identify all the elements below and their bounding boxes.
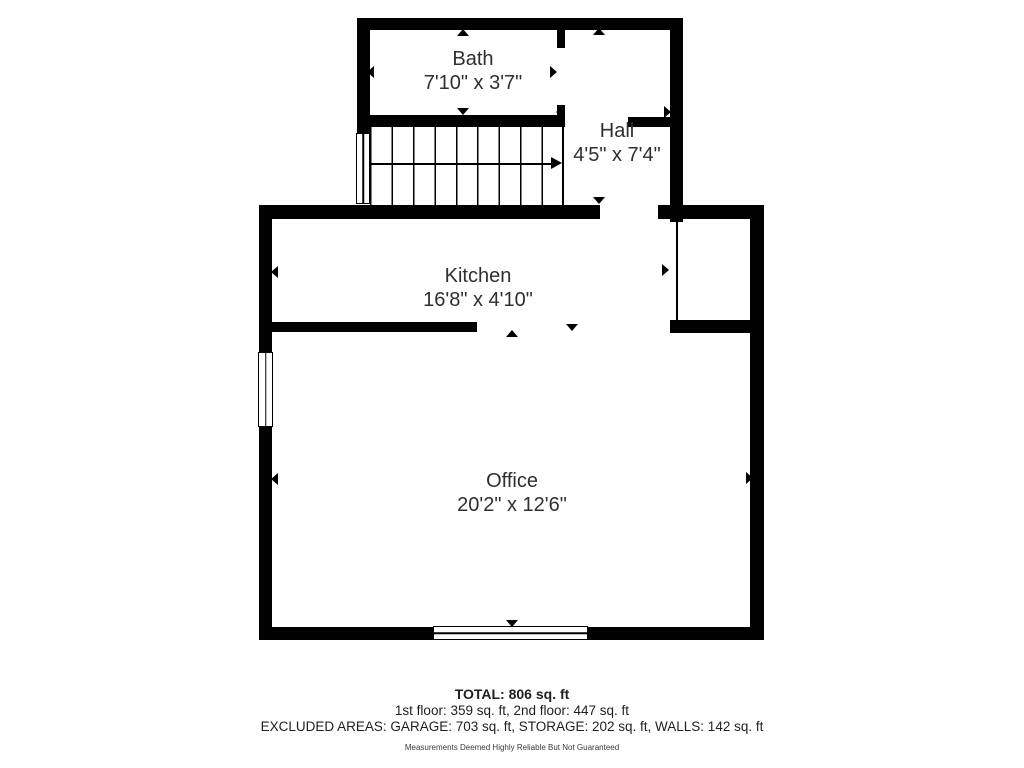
room-name: Bath (424, 48, 523, 72)
room-dimensions: 20'2" x 12'6" (457, 494, 567, 518)
wall-segment (357, 18, 683, 30)
window-icon (433, 626, 588, 640)
stairs-direction-arrow-icon (370, 163, 552, 165)
area-summary: TOTAL: 806 sq. ft 1st floor: 359 sq. ft,… (0, 686, 1024, 736)
opening-marker-icon (271, 266, 278, 278)
excluded-areas-text: EXCLUDED AREAS: GARAGE: 703 sq. ft, STOR… (0, 719, 1024, 736)
opening-marker-icon (506, 330, 518, 337)
room-dimensions: 7'10" x 3'7" (424, 72, 523, 96)
wall-segment (588, 627, 764, 640)
door-marker-icon (556, 106, 563, 118)
floor-plan: Bath 7'10" x 3'7" Hall 4'5" x 7'4" Kitch… (0, 0, 1024, 768)
wall-segment (259, 205, 600, 219)
door-marker-icon (664, 106, 671, 118)
wall-segment (750, 205, 764, 640)
closet-edge-line (676, 219, 678, 320)
stairwell-edge-line (562, 127, 564, 205)
opening-marker-icon (566, 324, 578, 331)
wall-segment (260, 322, 477, 332)
opening-marker-icon (746, 472, 753, 484)
room-label-hall: Hall 4'5" x 7'4" (573, 120, 660, 167)
window-icon (258, 352, 273, 427)
door-marker-icon (593, 197, 605, 204)
wall-segment (557, 18, 565, 48)
total-area-text: TOTAL: 806 sq. ft (0, 686, 1024, 703)
wall-segment (658, 205, 764, 219)
room-label-office: Office 20'2" x 12'6" (457, 470, 567, 517)
room-label-kitchen: Kitchen 16'8" x 4'10" (423, 265, 533, 312)
room-dimensions: 4'5" x 7'4" (573, 144, 660, 168)
wall-segment (259, 427, 272, 640)
wall-segment (357, 115, 565, 127)
room-dimensions: 16'8" x 4'10" (423, 289, 533, 313)
opening-marker-icon (271, 473, 278, 485)
stairs-direction-arrowhead-icon (551, 157, 562, 169)
disclaimer-text: Measurements Deemed Highly Reliable But … (0, 743, 1024, 752)
room-name: Office (457, 470, 567, 494)
window-marker-icon (506, 620, 518, 627)
door-marker-icon (550, 66, 557, 78)
door-marker-icon (457, 108, 469, 115)
room-name: Kitchen (423, 265, 533, 289)
wall-segment (259, 627, 433, 640)
door-marker-icon (662, 264, 669, 276)
window-icon (356, 133, 370, 204)
door-marker-icon (457, 29, 469, 36)
door-marker-icon (593, 28, 605, 35)
wall-segment (670, 18, 683, 222)
room-name: Hall (573, 120, 660, 144)
door-marker-icon (367, 66, 374, 78)
floor-areas-text: 1st floor: 359 sq. ft, 2nd floor: 447 sq… (0, 703, 1024, 720)
room-label-bath: Bath 7'10" x 3'7" (424, 48, 523, 95)
staircase (370, 127, 563, 205)
wall-segment (670, 320, 750, 333)
